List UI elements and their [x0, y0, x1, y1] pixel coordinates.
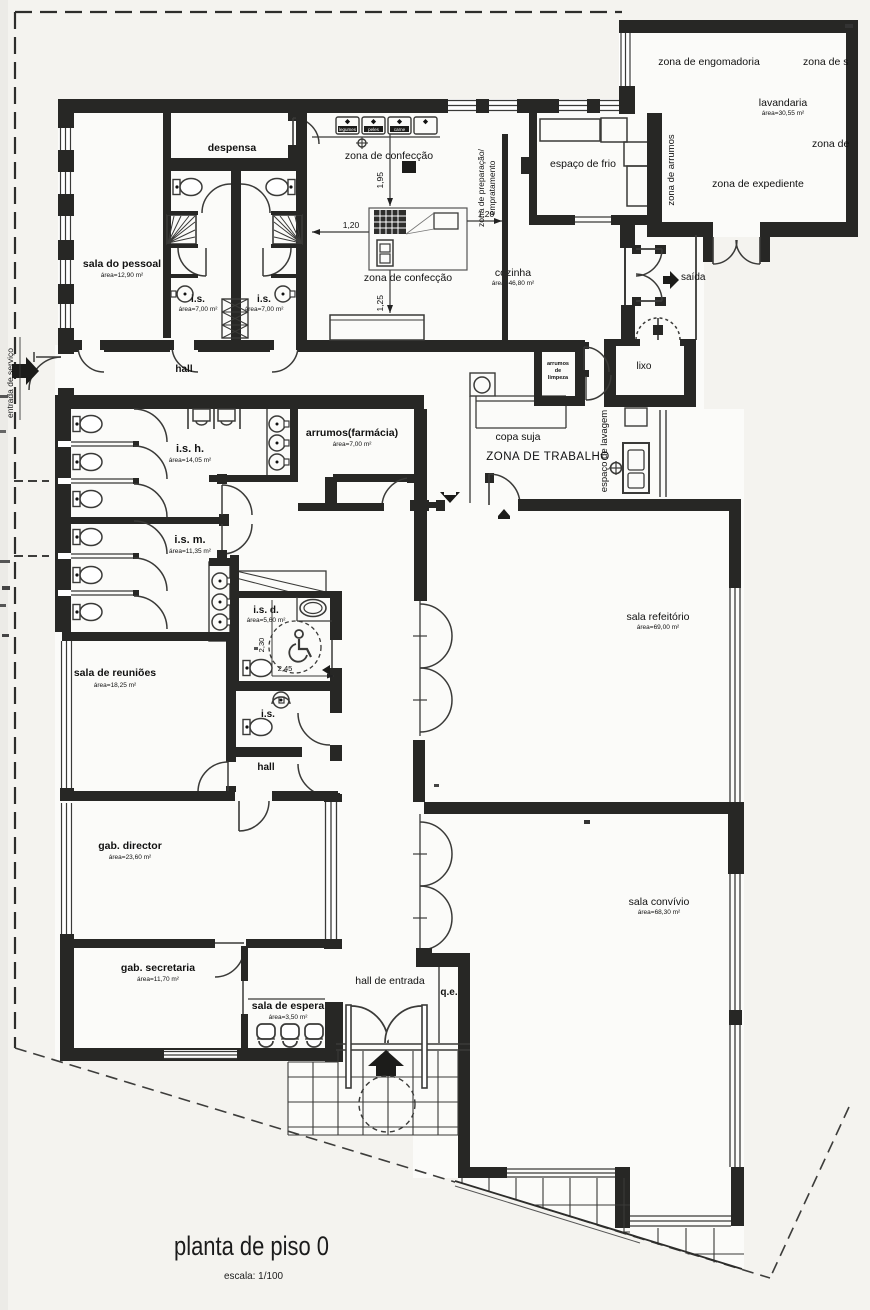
svg-text:zona de arrumos: zona de arrumos [666, 134, 677, 206]
svg-text:gab. secretaria: gab. secretaria [121, 962, 195, 974]
svg-text:1,25: 1,25 [375, 295, 385, 312]
svg-text:escala: 1/100: escala: 1/100 [224, 1270, 283, 1282]
svg-text:área=30,55 m²: área=30,55 m² [762, 110, 805, 117]
svg-text:entrada de serviço: entrada de serviço [5, 348, 15, 418]
svg-text:q.e.: q.e. [440, 987, 457, 998]
svg-text:hall: hall [257, 762, 274, 773]
svg-text:zona de s: zona de s [803, 56, 849, 68]
svg-text:copa suja: copa suja [496, 431, 541, 443]
svg-text:ZONA DE TRABALHO: ZONA DE TRABALHO [486, 451, 609, 463]
svg-text:área=23,60 m²: área=23,60 m² [109, 854, 152, 861]
svg-text:área=7,00 m²: área=7,00 m² [333, 441, 373, 448]
svg-text:saída: saída [681, 272, 706, 283]
svg-text:zona de expediente: zona de expediente [712, 178, 804, 190]
svg-text:peles: peles [368, 127, 380, 132]
svg-text:zona de: zona de [812, 138, 850, 150]
svg-text:carne: carne [394, 127, 406, 132]
svg-text:sala refeitório: sala refeitório [626, 611, 689, 623]
svg-text:sala do pessoal: sala do pessoal [83, 258, 161, 270]
svg-text:limpeza: limpeza [548, 375, 569, 381]
svg-text:hall: hall [175, 364, 192, 375]
svg-text:área=12,90 m²: área=12,90 m² [101, 272, 144, 279]
svg-text:sala de reuniões: sala de reuniões [74, 667, 156, 679]
svg-text:planta de piso 0: planta de piso 0 [174, 1231, 329, 1261]
svg-text:sala convívio: sala convívio [629, 896, 690, 908]
svg-text:zona de preparação/: zona de preparação/ [476, 148, 486, 227]
svg-text:espaço de frio: espaço de frio [550, 158, 616, 170]
svg-text:i.s.: i.s. [257, 294, 271, 305]
svg-text:área=7,00 m²: área=7,00 m² [245, 306, 285, 313]
svg-text:gab. director: gab. director [98, 840, 162, 852]
svg-text:cozinha: cozinha [495, 267, 531, 279]
svg-text:lavandaria: lavandaria [759, 97, 808, 109]
svg-text:área=3,50 m²: área=3,50 m² [269, 1014, 309, 1021]
svg-text:área=69,00 m²: área=69,00 m² [637, 624, 680, 631]
svg-text:i.s. h.: i.s. h. [176, 443, 204, 455]
svg-text:hall de entrada: hall de entrada [355, 975, 425, 987]
svg-text:legumes: legumes [339, 127, 357, 132]
svg-text:sala de espera: sala de espera [252, 1000, 325, 1012]
svg-text:área=14,05 m²: área=14,05 m² [169, 457, 212, 464]
svg-text:área=68,30 m²: área=68,30 m² [638, 909, 681, 916]
svg-text:arrumos: arrumos [547, 361, 569, 367]
svg-text:área=7,00 m²: área=7,00 m² [179, 306, 219, 313]
svg-text:área=11,35 m²: área=11,35 m² [169, 548, 212, 555]
svg-text:zona de confecção: zona de confecção [364, 272, 452, 284]
svg-text:área=5,60 m²: área=5,60 m² [247, 617, 287, 624]
svg-text:1,95: 1,95 [375, 172, 385, 189]
svg-text:área=18,25 m²: área=18,25 m² [94, 682, 137, 689]
svg-text:i.s.: i.s. [191, 294, 205, 305]
svg-text:2,30: 2,30 [257, 638, 266, 653]
svg-text:i.s. d.: i.s. d. [253, 605, 279, 616]
svg-text:2,45: 2,45 [278, 664, 293, 673]
svg-text:i.s. m.: i.s. m. [174, 534, 205, 546]
svg-text:zona de confecção: zona de confecção [345, 150, 433, 162]
svg-text:empratamento: empratamento [487, 160, 497, 215]
svg-text:lixo: lixo [636, 361, 651, 372]
svg-text:despensa: despensa [208, 142, 257, 154]
svg-text:1,20: 1,20 [343, 220, 360, 230]
svg-text:área=11,70 m²: área=11,70 m² [137, 976, 180, 983]
svg-text:de: de [555, 368, 561, 374]
svg-text:zona de engomadoria: zona de engomadoria [658, 56, 760, 68]
svg-text:área=46,80 m²: área=46,80 m² [492, 280, 535, 287]
svg-text:arrumos(farmácia): arrumos(farmácia) [306, 427, 398, 439]
